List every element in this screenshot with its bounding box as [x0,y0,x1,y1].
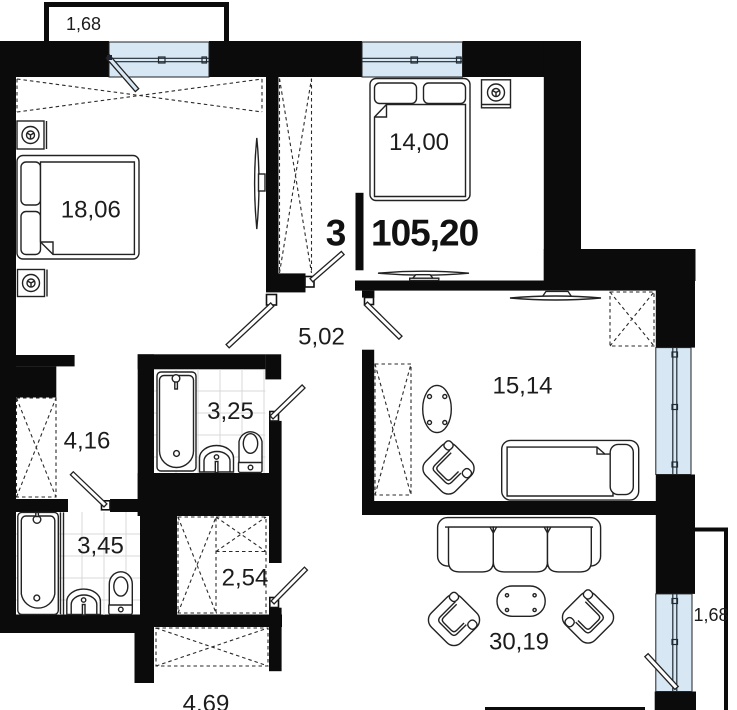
svg-text:4,16: 4,16 [64,428,111,455]
svg-text:1,68: 1,68 [693,605,728,625]
svg-text:14,00: 14,00 [389,129,449,156]
svg-text:18,06: 18,06 [61,197,121,224]
svg-text:3: 3 [326,213,346,254]
svg-text:4,69: 4,69 [183,691,230,710]
svg-text:3,25: 3,25 [207,398,254,425]
svg-text:1,68: 1,68 [66,14,101,34]
svg-text:3,45: 3,45 [77,533,124,560]
svg-text:30,19: 30,19 [489,629,549,656]
svg-text:5,02: 5,02 [298,324,345,351]
svg-text:2,54: 2,54 [222,565,269,592]
svg-text:15,14: 15,14 [492,373,552,400]
svg-text:105,20: 105,20 [371,213,479,254]
